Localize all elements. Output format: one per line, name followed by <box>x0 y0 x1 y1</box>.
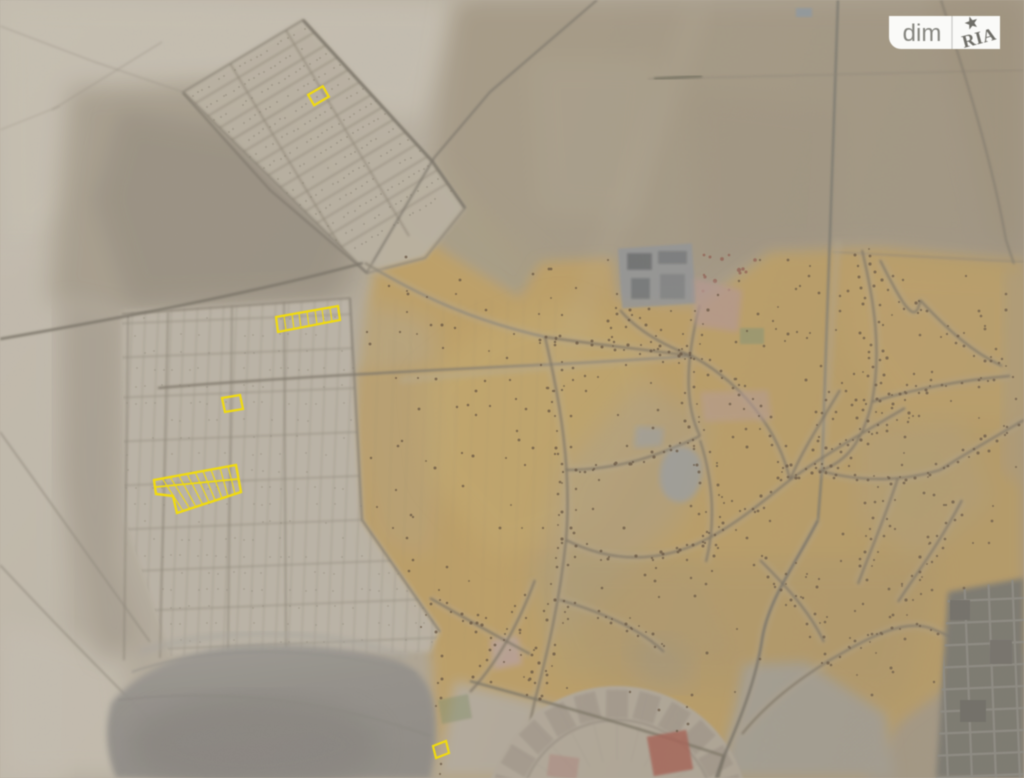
svg-text:dim: dim <box>903 20 942 47</box>
